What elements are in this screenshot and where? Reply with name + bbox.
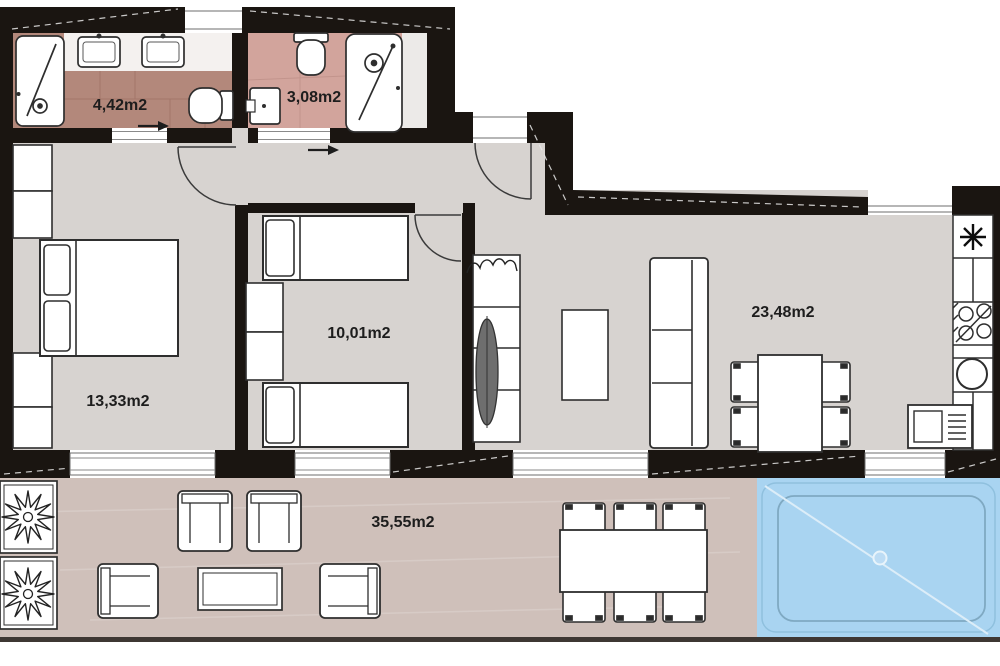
left-wall [0, 7, 13, 466]
toilet-bathroom2 [294, 33, 328, 75]
shower-bathroom2 [346, 34, 402, 132]
pool-drain [874, 552, 887, 565]
bedroom2-top-wall [235, 203, 415, 213]
bedroom1-window [70, 453, 215, 475]
pillow [266, 387, 294, 443]
kitchen-corner-wall [952, 186, 1000, 215]
bedroom2-door-opening [415, 203, 463, 213]
kitchen-window [865, 453, 945, 475]
floor-plan: 4,42m2 3,08m2 13,33m2 10,01m2 23,48m2 35… [0, 0, 1000, 666]
appliance [908, 405, 972, 448]
nightstand-column [246, 283, 283, 380]
pillow [44, 245, 70, 295]
bedroom2-area-label: 10,01m2 [327, 325, 390, 342]
terrace-edge [0, 637, 1000, 642]
sofa [650, 258, 708, 448]
entry-wall-left [455, 112, 473, 143]
armchair [320, 564, 380, 618]
entry-door-opening [473, 112, 527, 143]
planter-bottom [0, 557, 57, 629]
right-wall [993, 215, 1000, 450]
bedroom1-area-label: 13,33m2 [86, 393, 149, 410]
living-top-window [868, 190, 952, 215]
pillow [44, 301, 70, 351]
toilet-bathroom1 [189, 88, 233, 123]
armchair [247, 491, 301, 551]
single-bed-top [263, 216, 408, 280]
tv-cabinet [473, 255, 520, 442]
living-area-label: 23,48m2 [751, 304, 814, 321]
sink-bathroom2 [246, 88, 280, 124]
armchair [98, 564, 158, 618]
shower-bathroom1 [16, 36, 64, 126]
bathroom2-area-label: 3,08m2 [287, 89, 341, 106]
bathroom2-side-strip [402, 33, 427, 128]
top-window [185, 7, 242, 33]
double-bed [40, 240, 178, 356]
bathroom1-area-label: 4,42m2 [93, 97, 147, 114]
bedroom2-window [295, 453, 390, 475]
terrace-area-label: 35,55m2 [371, 514, 434, 531]
sink-right-bathroom1 [142, 34, 184, 68]
terrace-table [560, 530, 707, 592]
sink-left-bathroom1 [78, 34, 120, 68]
bedroom1-door-opening [235, 144, 248, 205]
coffee-table [562, 310, 608, 400]
dining-table [758, 355, 822, 452]
pillow [266, 220, 294, 276]
armchair [178, 491, 232, 551]
bathroom2-door-opening [258, 128, 330, 143]
pool [757, 478, 1000, 637]
single-bed-bottom [263, 383, 408, 447]
terrace-dining-set [560, 503, 707, 622]
lounge-table-inner [203, 573, 277, 605]
living-window [513, 453, 648, 475]
planter-top [0, 481, 57, 553]
